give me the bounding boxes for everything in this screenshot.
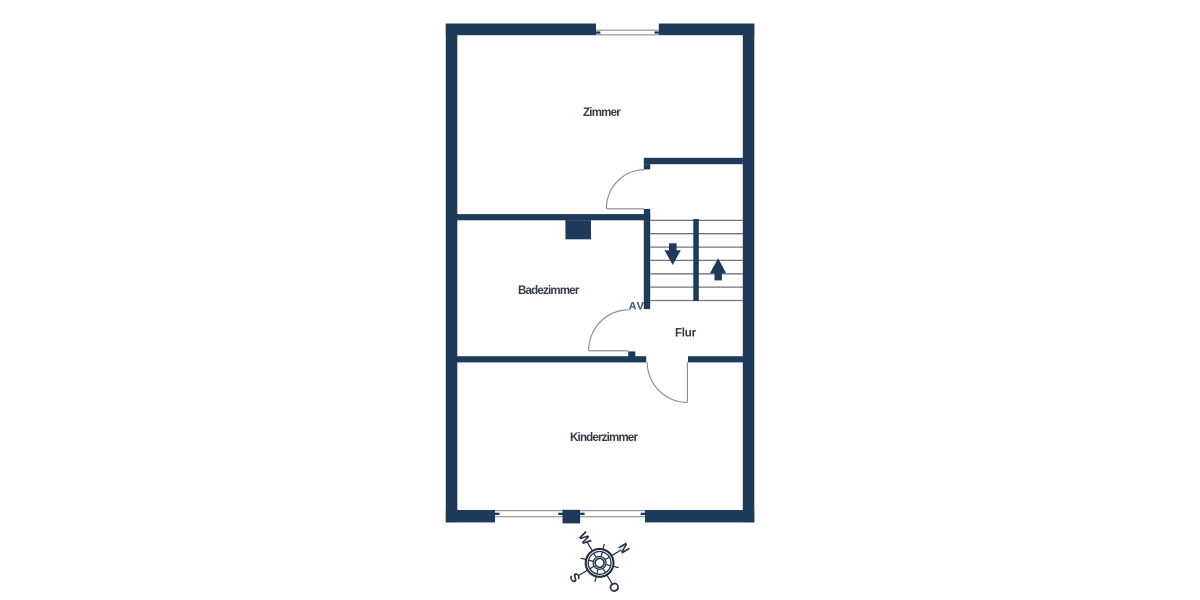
svg-text:A: A <box>629 300 637 312</box>
svg-text:Zimmer: Zimmer <box>583 107 621 119</box>
svg-text:Flur: Flur <box>675 328 697 340</box>
svg-text:V: V <box>637 300 645 312</box>
svg-text:Kinderzimmer: Kinderzimmer <box>570 432 638 444</box>
svg-text:Badezimmer: Badezimmer <box>518 285 580 297</box>
